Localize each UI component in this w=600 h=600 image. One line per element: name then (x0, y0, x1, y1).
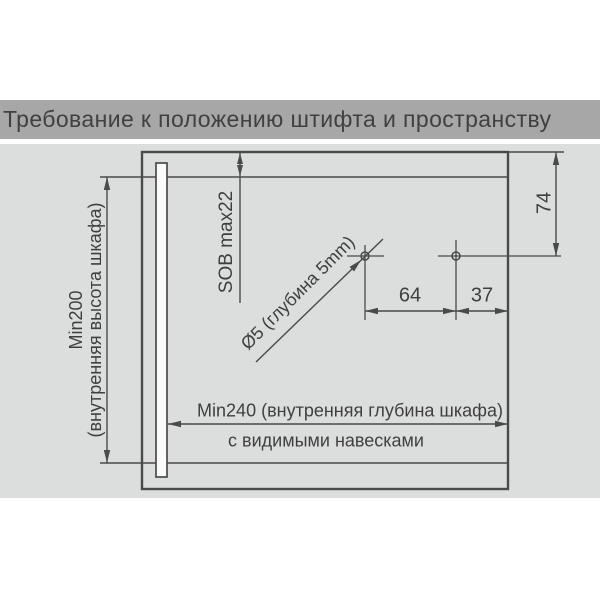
label-cabinet-height-line1: Min200 (67, 202, 86, 437)
arrow-up (553, 152, 559, 165)
pin-front (438, 240, 561, 320)
arrow-left (456, 308, 469, 314)
arrow-right (443, 308, 456, 314)
back-panel-strip (156, 163, 167, 477)
arrow-left (365, 308, 378, 314)
label-cabinet-height: Min200 (внутренняя высота шкафа) (67, 202, 105, 437)
arrow-left (168, 421, 181, 427)
arrow-down (237, 165, 243, 176)
label-pin-distance-74: 74 (535, 192, 556, 214)
label-pin-spacing-64: 64 (399, 286, 421, 307)
label-cabinet-depth: Min240 (внутренняя глубина шкафа) (197, 402, 503, 421)
arrow-up (237, 153, 243, 164)
dim-min240 (168, 421, 508, 427)
arrow-down (553, 243, 559, 256)
label-pin-to-edge-37: 37 (471, 286, 493, 307)
label-cabinet-height-line2: (внутренняя высота шкафа) (86, 202, 105, 437)
label-mounting-note: с видимыми навесками (228, 432, 424, 451)
dim-64-37 (365, 308, 508, 314)
label-top-panel-thickness: SOB max22 (217, 191, 237, 293)
dim-sob-max22 (237, 152, 243, 303)
arrow-right (495, 421, 508, 427)
arrow-up (104, 177, 110, 190)
arrow-right (495, 308, 508, 314)
arrow-down (104, 450, 110, 463)
